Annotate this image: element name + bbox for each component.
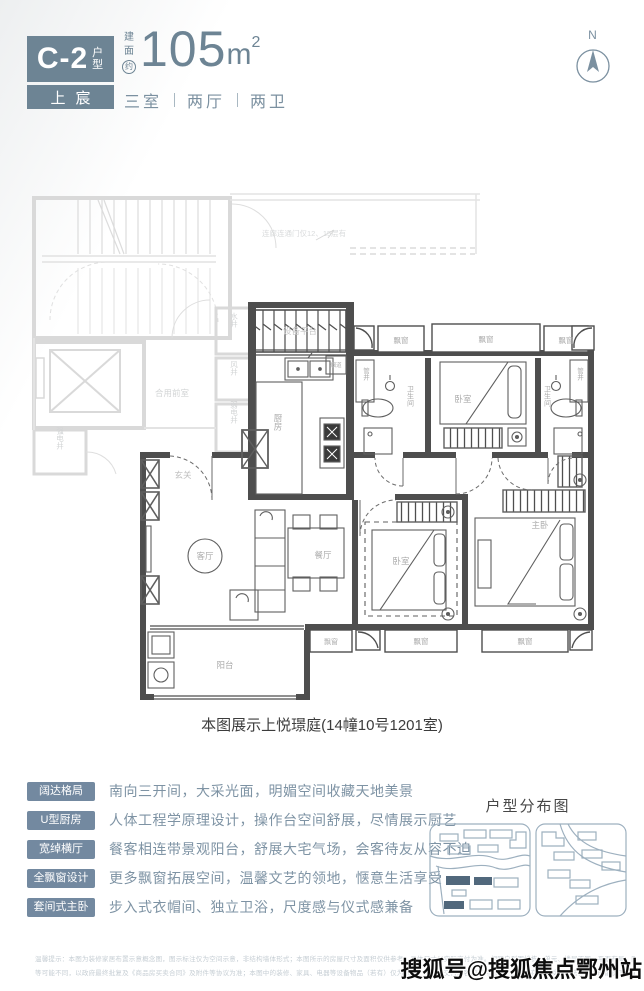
pipe-shaft-box	[356, 360, 374, 402]
bedroom-label: 卧室	[392, 556, 410, 566]
feature-tag: 全飘窗设计	[27, 869, 95, 888]
air-shaft-label: 风井	[229, 360, 238, 377]
bedroom-label: 卧室	[454, 394, 472, 404]
highlighted-buildings	[444, 876, 492, 909]
feature-list: 阔达格局 南向三开间，大采光面，明媚空间收藏天地美景 U型厨房 人体工程学原理设…	[27, 781, 472, 926]
feature-tag: 宽绰横厅	[27, 840, 95, 859]
area-superscript: 2	[251, 34, 260, 52]
north-compass: N	[570, 28, 616, 93]
floor-plan: 合用前室 水井 风井 弱电井 强电井 连廊连通门仅12、15层有 设备平台 厨房…	[20, 190, 624, 720]
spec-divider	[237, 93, 238, 107]
spec-rooms: 三室	[124, 88, 162, 112]
washer	[148, 662, 174, 688]
feature-row: 全飘窗设计 更多飘窗拓展空间，温馨文艺的领地，惬意生活享受	[27, 868, 472, 888]
basin	[386, 382, 395, 391]
bottom-bay-windows	[310, 630, 592, 652]
spec-divider	[174, 93, 175, 107]
wardrobe	[444, 428, 502, 448]
bed	[440, 362, 526, 424]
pipe-shaft-label: 管井	[362, 366, 370, 382]
unit-badge: C-2 户型 上宸	[27, 36, 114, 109]
area-value: 105	[140, 24, 226, 74]
feature-text: 步入式衣帽间、独立卫浴，尺度感与仪式感兼备	[109, 897, 414, 917]
brand-label: 上宸	[27, 85, 114, 109]
water-shaft-label: 水井	[229, 311, 238, 329]
weak-shaft-label: 弱电井	[229, 400, 238, 424]
tv-cabinet	[146, 526, 151, 572]
feature-tag: 阔达格局	[27, 782, 95, 801]
sofa	[255, 510, 285, 612]
strong-shaft-label: 强电井	[55, 426, 64, 450]
floorplan-page: C-2 户型 上宸 建 面 约 105 m 2 三室 两厅 两卫 N	[0, 0, 644, 991]
feature-text: 餐客相连带景观阳台，舒展大宅气场，会客待友从容不迫	[109, 839, 472, 859]
walk-in-wardrobe	[558, 456, 582, 487]
feature-tag: 套间式主卧	[27, 898, 95, 917]
unit-type-label: 户型	[92, 47, 104, 71]
feature-row: U型厨房 人体工程学原理设计，操作台空间舒展，尽情展示厨艺	[27, 810, 472, 830]
bay-window-label: 飘窗	[559, 335, 574, 345]
bed-outline	[365, 522, 457, 616]
shared-lobby-label: 合用前室	[155, 388, 190, 398]
feature-text: 南向三开间，大采光面，明媚空间收藏天地美景	[109, 781, 414, 801]
area-prefix-char-circled: 约	[122, 60, 136, 74]
area-unit: m	[226, 40, 251, 70]
distribution-title: 户型分布图	[428, 795, 628, 816]
living-label: 客厅	[196, 551, 214, 561]
basin	[552, 382, 561, 391]
shower	[364, 428, 392, 454]
unit-distribution: 户型分布图	[428, 795, 628, 923]
bed	[372, 530, 446, 610]
feature-row: 套间式主卧 步入式衣帽间、独立卫浴，尺度感与仪式感兼备	[27, 897, 472, 917]
bay-window-label: 飘窗	[479, 334, 494, 344]
distribution-map	[428, 822, 628, 918]
feature-row: 宽绰横厅 餐客相连带景观阳台，舒展大宅气场，会客待友从容不迫	[27, 839, 472, 859]
north-arrow-icon	[570, 42, 616, 88]
unit-badge-top: C-2 户型	[27, 36, 114, 82]
equip-platform-label: 设备平台	[283, 326, 317, 336]
floor-plan-drawing: 合用前室 水井 风井 弱电井 强电井 连廊连通门仅12、15层有 设备平台 厨房…	[20, 190, 624, 715]
area-prefix-char: 建	[124, 31, 134, 45]
bath-label: 卫生间	[544, 386, 552, 408]
unit-code: C-2	[37, 42, 88, 76]
shower	[554, 428, 582, 454]
bay-window-label: 飘窗	[324, 637, 338, 646]
flue-label: 烟道	[330, 361, 342, 369]
feature-row: 阔达格局 南向三开间，大采光面，明媚空间收藏天地美景	[27, 781, 472, 801]
area-title: 建 面 约 105 m 2	[122, 24, 260, 74]
entry-label: 玄关	[174, 470, 192, 480]
bay-window-label: 飘窗	[414, 636, 429, 646]
walk-in-wardrobe	[503, 490, 585, 512]
spec-baths: 两卫	[250, 88, 288, 112]
spec-halls: 两厅	[187, 88, 225, 112]
bath-label: 卫生间	[407, 386, 415, 408]
feature-text: 更多飘窗拓展空间，温馨文艺的领地，惬意生活享受	[109, 868, 443, 888]
stair-treads	[42, 200, 216, 334]
bay-window-label: 飘窗	[394, 335, 409, 345]
compass-n-label: N	[570, 28, 616, 42]
feature-tag: U型厨房	[27, 811, 95, 830]
area-prefix-char: 面	[124, 45, 134, 59]
pipe-shaft-label: 管井	[576, 366, 584, 382]
balcony-label: 阳台	[216, 660, 233, 670]
corridor-note: 连廊连通门仅12、15层有	[262, 228, 347, 238]
kitchen-label: 厨房	[273, 414, 283, 432]
area-prefix: 建 面 约	[122, 31, 136, 74]
watermark: 搜狐号@搜狐焦点鄂州站	[401, 952, 642, 984]
bay-window-label: 飘窗	[518, 636, 533, 646]
pipe-shaft-box	[570, 360, 588, 402]
master-label: 主卧	[531, 520, 549, 530]
dining-label: 餐厅	[314, 550, 332, 560]
plan-caption: 本图展示上悦璟庭(14幢10号1201室)	[0, 714, 644, 735]
layout-spec: 三室 两厅 两卫	[124, 88, 288, 112]
feature-text: 人体工程学原理设计，操作台空间舒展，尽情展示厨艺	[109, 810, 457, 830]
